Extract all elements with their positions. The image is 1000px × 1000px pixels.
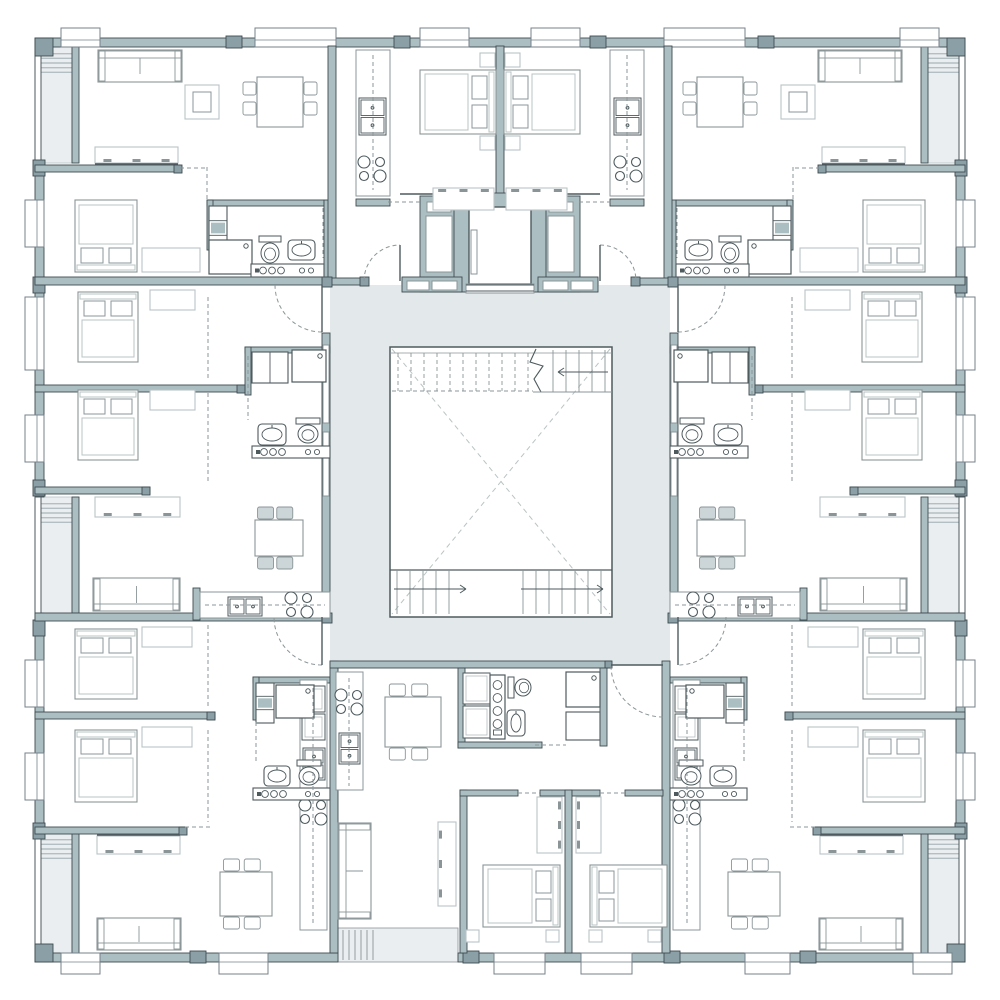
circle [705,594,714,603]
cabinet [252,352,288,383]
dresser [648,930,661,942]
rect [956,660,975,707]
wall [330,661,611,668]
facade-window [25,753,44,800]
tick [135,850,143,853]
dining-table [385,684,441,760]
rect [900,28,939,47]
toilet [679,760,703,785]
chair [304,82,317,95]
pilaster [668,277,678,287]
chair [412,748,428,760]
rect [599,871,614,893]
chair [244,917,260,929]
sofa [819,918,903,950]
tick [103,159,111,162]
dresser [805,290,850,310]
chair [700,557,716,569]
coffee-table [781,85,815,119]
door-arc [611,665,663,717]
kitchen-sink [359,98,386,135]
dresser [142,248,200,272]
facade-window [581,953,632,974]
dining-table [243,77,317,127]
pilaster [142,487,150,495]
rect [895,399,916,414]
rect [674,350,708,382]
wall [207,200,324,206]
rect [868,399,889,414]
dining-table [728,859,780,929]
wall [670,277,965,285]
rect [686,685,724,718]
circle [703,606,715,618]
facade-window [25,660,44,707]
pilaster [955,620,967,636]
washbasin [264,766,290,786]
circle [358,156,370,168]
wardrobe [822,147,905,163]
tick [830,159,838,162]
door-swing [275,285,322,332]
railing [35,497,41,613]
terrace-bottom-center [338,928,458,962]
rect [109,739,131,754]
rect [257,792,261,796]
dining-table [683,77,757,127]
railing [959,833,965,953]
bed [75,730,137,802]
wardrobe [820,497,905,517]
rect [25,415,44,462]
pilaster [785,712,793,720]
wall [72,833,79,953]
rect [463,673,490,704]
railing [35,47,41,163]
dining-table [697,507,745,569]
rect [296,418,320,424]
tick [577,821,580,829]
rect [719,236,741,242]
chair [683,82,696,95]
wall [72,47,79,163]
wall [35,487,150,494]
circle [285,592,297,604]
pilaster [190,951,206,963]
rect [676,264,749,277]
plumbing-column [490,675,505,739]
shower [276,685,314,718]
wall [35,385,245,392]
dresser [546,930,559,942]
rect [869,739,891,754]
rect [211,223,225,234]
circle [317,801,326,810]
wall [328,46,336,281]
facade-window [25,415,44,462]
circle [335,689,347,701]
rect [251,264,324,277]
wall [755,385,965,392]
chair [744,82,757,95]
tick [858,850,866,853]
washbasin [288,240,315,260]
wardrobe [97,836,180,854]
rect [228,597,262,616]
door-swing [678,285,725,332]
dresser [589,930,602,942]
ellipse [292,244,311,256]
rect [869,638,891,653]
cabinet [726,683,744,723]
tick [859,513,867,516]
wall [815,827,965,834]
wardrobe [95,147,178,163]
rect [297,760,321,766]
tick [554,189,562,192]
wall [785,712,965,719]
bench [407,281,429,290]
rect [258,698,272,707]
circle [299,799,311,811]
facade-window [956,753,975,800]
wall [35,277,330,285]
pilaster [226,36,242,48]
rect [25,200,44,247]
door-arc [275,285,322,332]
bed [78,292,138,362]
door-swing [274,617,322,665]
vanity-counter [252,446,330,458]
tick [104,513,112,516]
rect [738,597,772,616]
rect [513,76,528,99]
circle [687,592,699,604]
circle [689,813,701,825]
rect [111,301,132,316]
rect [359,98,386,135]
rect [956,297,975,370]
rect [697,77,743,127]
tick [558,821,561,829]
rect [697,520,745,556]
tick [577,841,580,849]
rect [664,28,745,47]
rect [81,248,103,263]
rect [670,788,747,800]
chair [752,859,768,871]
dresser [150,390,195,410]
rect [956,415,975,462]
wall [35,827,185,834]
elevator-rail [471,230,477,274]
facade-window [664,28,745,47]
chair [304,102,317,115]
rect [292,350,326,382]
circle [616,172,625,181]
chair [277,507,293,519]
toilet [680,418,704,443]
wall [496,46,504,196]
closet [566,712,600,740]
pilaster [631,277,640,286]
rect [566,672,600,707]
sofa [98,50,182,82]
wall [460,790,518,796]
rect [81,638,103,653]
circle [614,156,626,168]
wall [625,790,663,796]
tick [438,189,446,192]
washbasin [710,766,736,786]
wall [565,790,572,953]
elevator-car [469,207,531,284]
tick [439,889,442,897]
stair-core [390,347,612,617]
dresser [466,930,479,942]
ellipse [511,714,521,732]
door-arc [364,245,400,281]
pilaster [758,36,774,48]
rect [255,269,259,273]
pilaster [207,712,215,720]
wall [800,588,807,620]
pilaster [947,38,965,56]
dresser [150,290,195,310]
railing [959,497,965,613]
circle [353,691,362,700]
wardrobe [438,822,456,906]
rect [220,872,272,916]
ellipse [519,682,528,693]
pilaster [322,277,332,287]
pilaster [33,620,45,636]
sofa [820,578,907,611]
rect [748,240,791,274]
rect [259,236,281,242]
rect [674,450,678,454]
rect [81,739,103,754]
appliance [463,706,490,738]
facade-window [913,953,952,974]
chair [389,748,405,760]
courtyard-window [323,432,329,496]
pilaster [590,36,606,48]
rect [581,953,632,974]
dresser [480,53,495,67]
toilet [296,418,320,443]
ellipse [686,430,698,441]
wardrobe [433,188,494,210]
washbasin [258,424,286,445]
rect [193,92,211,112]
bed [590,865,667,927]
facade-window [956,297,975,370]
wall [35,165,180,172]
circle [301,815,310,824]
rect [252,446,330,458]
rect [728,872,780,916]
door-arc [274,617,322,665]
floor-plan-canvas [0,0,1000,1000]
toilet [259,236,281,263]
wall [610,199,644,206]
toilet [508,677,531,698]
circle [376,158,385,167]
tick [134,513,142,516]
facade-window [745,953,790,974]
sofa [338,823,371,919]
rect [255,520,303,556]
rect [276,685,314,718]
tick [860,159,868,162]
shower [566,672,600,707]
dining-table [220,859,272,929]
chair [719,507,735,519]
rect [728,698,742,707]
kitchen-sink [614,98,641,135]
circle [673,799,685,811]
chair [258,507,274,519]
wall [820,165,965,172]
vanity-counter [253,788,330,800]
rect [256,450,260,454]
tick [889,159,897,162]
elevator-core [400,193,600,293]
wall [676,200,793,206]
rect [956,753,975,800]
rect [385,697,441,747]
rect [219,953,268,974]
chair [223,917,239,929]
pilaster [179,827,187,835]
bench [543,281,568,290]
railing [959,47,965,163]
shower [674,350,708,382]
appliance [463,673,490,704]
rect [536,871,551,893]
rect [897,638,919,653]
wardrobe [576,797,601,853]
tick [439,860,442,868]
door-swing [611,665,663,717]
tick [577,801,580,809]
chair [244,859,260,871]
dresser [808,727,858,747]
wall [664,46,672,281]
tick [558,841,561,849]
pilaster [35,38,53,56]
sofa [818,50,902,82]
wardrobe [537,797,562,853]
washbasin [714,424,742,445]
toilet [719,236,741,263]
rect [775,223,789,234]
rect [680,418,704,424]
kitchen-sink [738,597,772,616]
pilaster [35,944,53,962]
bench [432,281,457,290]
tick [439,831,442,839]
facade-window [900,28,939,47]
ellipse [689,244,708,256]
rect [680,269,684,273]
tick [888,513,896,516]
chair [731,859,747,871]
tick [828,850,836,853]
rect [789,92,807,112]
rect [109,248,131,263]
shower [292,350,326,382]
bed [75,200,137,272]
door-arc [678,617,726,665]
rect [674,792,678,796]
bed [504,70,580,134]
rect [531,28,580,47]
rect [255,28,336,47]
wall [921,47,928,163]
circle [315,813,327,825]
tick [558,801,561,809]
sofa [93,578,180,611]
washbasin [685,240,712,260]
chair [731,917,747,929]
wall [460,790,467,953]
dresser [805,390,850,410]
vanity-counter [251,264,324,277]
circle [632,158,641,167]
cabinet [256,683,274,723]
dresser [800,248,858,272]
wall [72,497,79,613]
pilaster [174,165,182,173]
bed [863,629,925,699]
coffee-table [185,85,219,119]
dresser [808,627,858,647]
wall [921,497,928,613]
dresser [505,53,520,67]
wall [35,712,215,719]
ellipse [262,428,282,441]
circle [337,705,346,714]
facade-window [956,660,975,707]
pilaster [237,385,245,393]
rect [895,301,916,316]
rect [536,899,551,921]
rect [463,706,490,738]
rect [897,739,919,754]
chair [744,102,757,115]
rect [109,638,131,653]
ellipse [265,248,276,260]
dresser [505,136,520,150]
wall [193,588,200,620]
chair [223,859,239,871]
tick [133,159,141,162]
rect [956,200,975,247]
dresser [142,727,192,747]
rect [494,953,545,974]
wall [850,487,965,494]
circle [351,703,363,715]
bed [483,865,560,927]
tick [164,850,172,853]
door-arc [600,245,636,281]
wardrobe [95,497,180,517]
bed [862,390,922,460]
rect [679,760,703,766]
rect [599,899,614,921]
